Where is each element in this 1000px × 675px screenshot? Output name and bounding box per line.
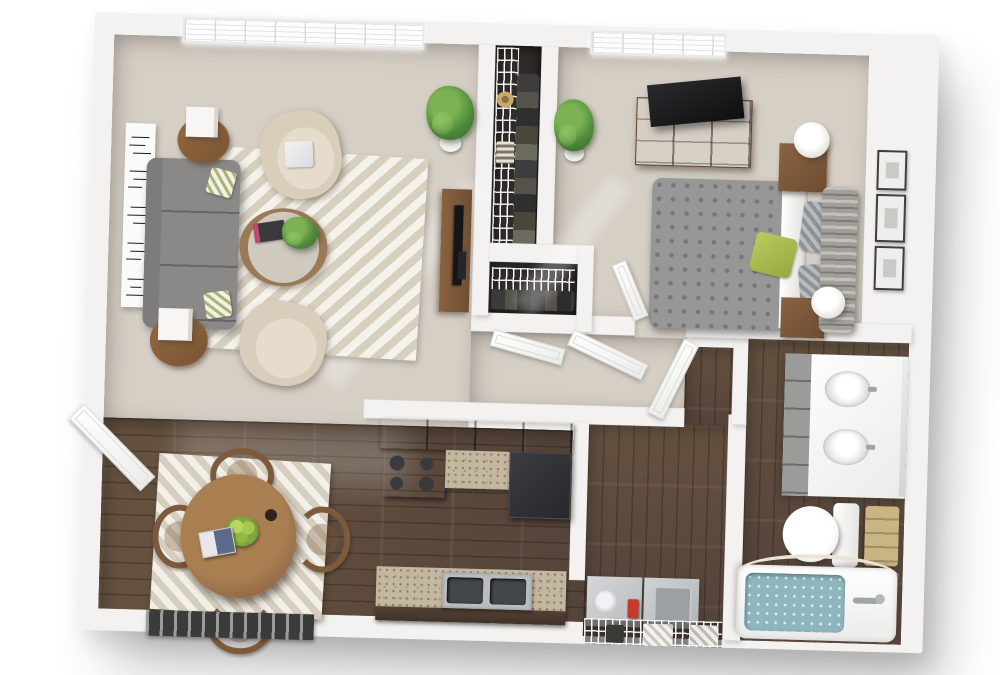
double-sink [441,572,532,610]
wall-corridor-bathroom [732,338,748,424]
cube-lamp [186,107,219,138]
tv-console [439,189,472,313]
floor-plan [78,12,940,653]
linen-closet-clothes [491,289,575,311]
table-decor [265,509,277,521]
wall-linen-closet-right [576,246,593,332]
detergent-bottle [627,599,639,618]
vanity-drawers [782,353,812,496]
kitchen-counter [445,450,510,490]
picture-frame [875,194,906,243]
sofa [142,158,241,331]
throw-pillow [205,167,237,199]
picture-frame [876,150,907,191]
wall-linen-closet-top [489,243,578,263]
book [198,527,236,559]
media-player [458,251,467,279]
sink-basin [447,577,484,604]
tub-drain [875,594,885,604]
sink-basin [490,578,527,605]
striped-shelf-item [496,141,515,163]
vanity-sink [824,371,871,408]
table-plant [281,216,318,249]
accent-pillow [284,141,313,168]
hanging-towel [690,625,719,646]
bedroom-window [590,30,727,58]
vanity-mirror [899,359,909,497]
bathtub-water [744,572,846,633]
refrigerator [508,452,572,520]
vanity [782,353,909,498]
towel-stack [864,506,900,567]
hanging-towel [643,624,674,647]
cube-lamp [158,308,193,341]
throw-pillow [203,290,233,320]
tv [647,76,745,127]
picture-frame [874,246,905,291]
washer-lid-dial [594,590,617,613]
linen-closet-wire-shelf [491,267,575,291]
doormat [146,610,315,641]
hanging-cloth [606,625,624,643]
vanity-sink [823,429,870,466]
range [383,448,446,498]
